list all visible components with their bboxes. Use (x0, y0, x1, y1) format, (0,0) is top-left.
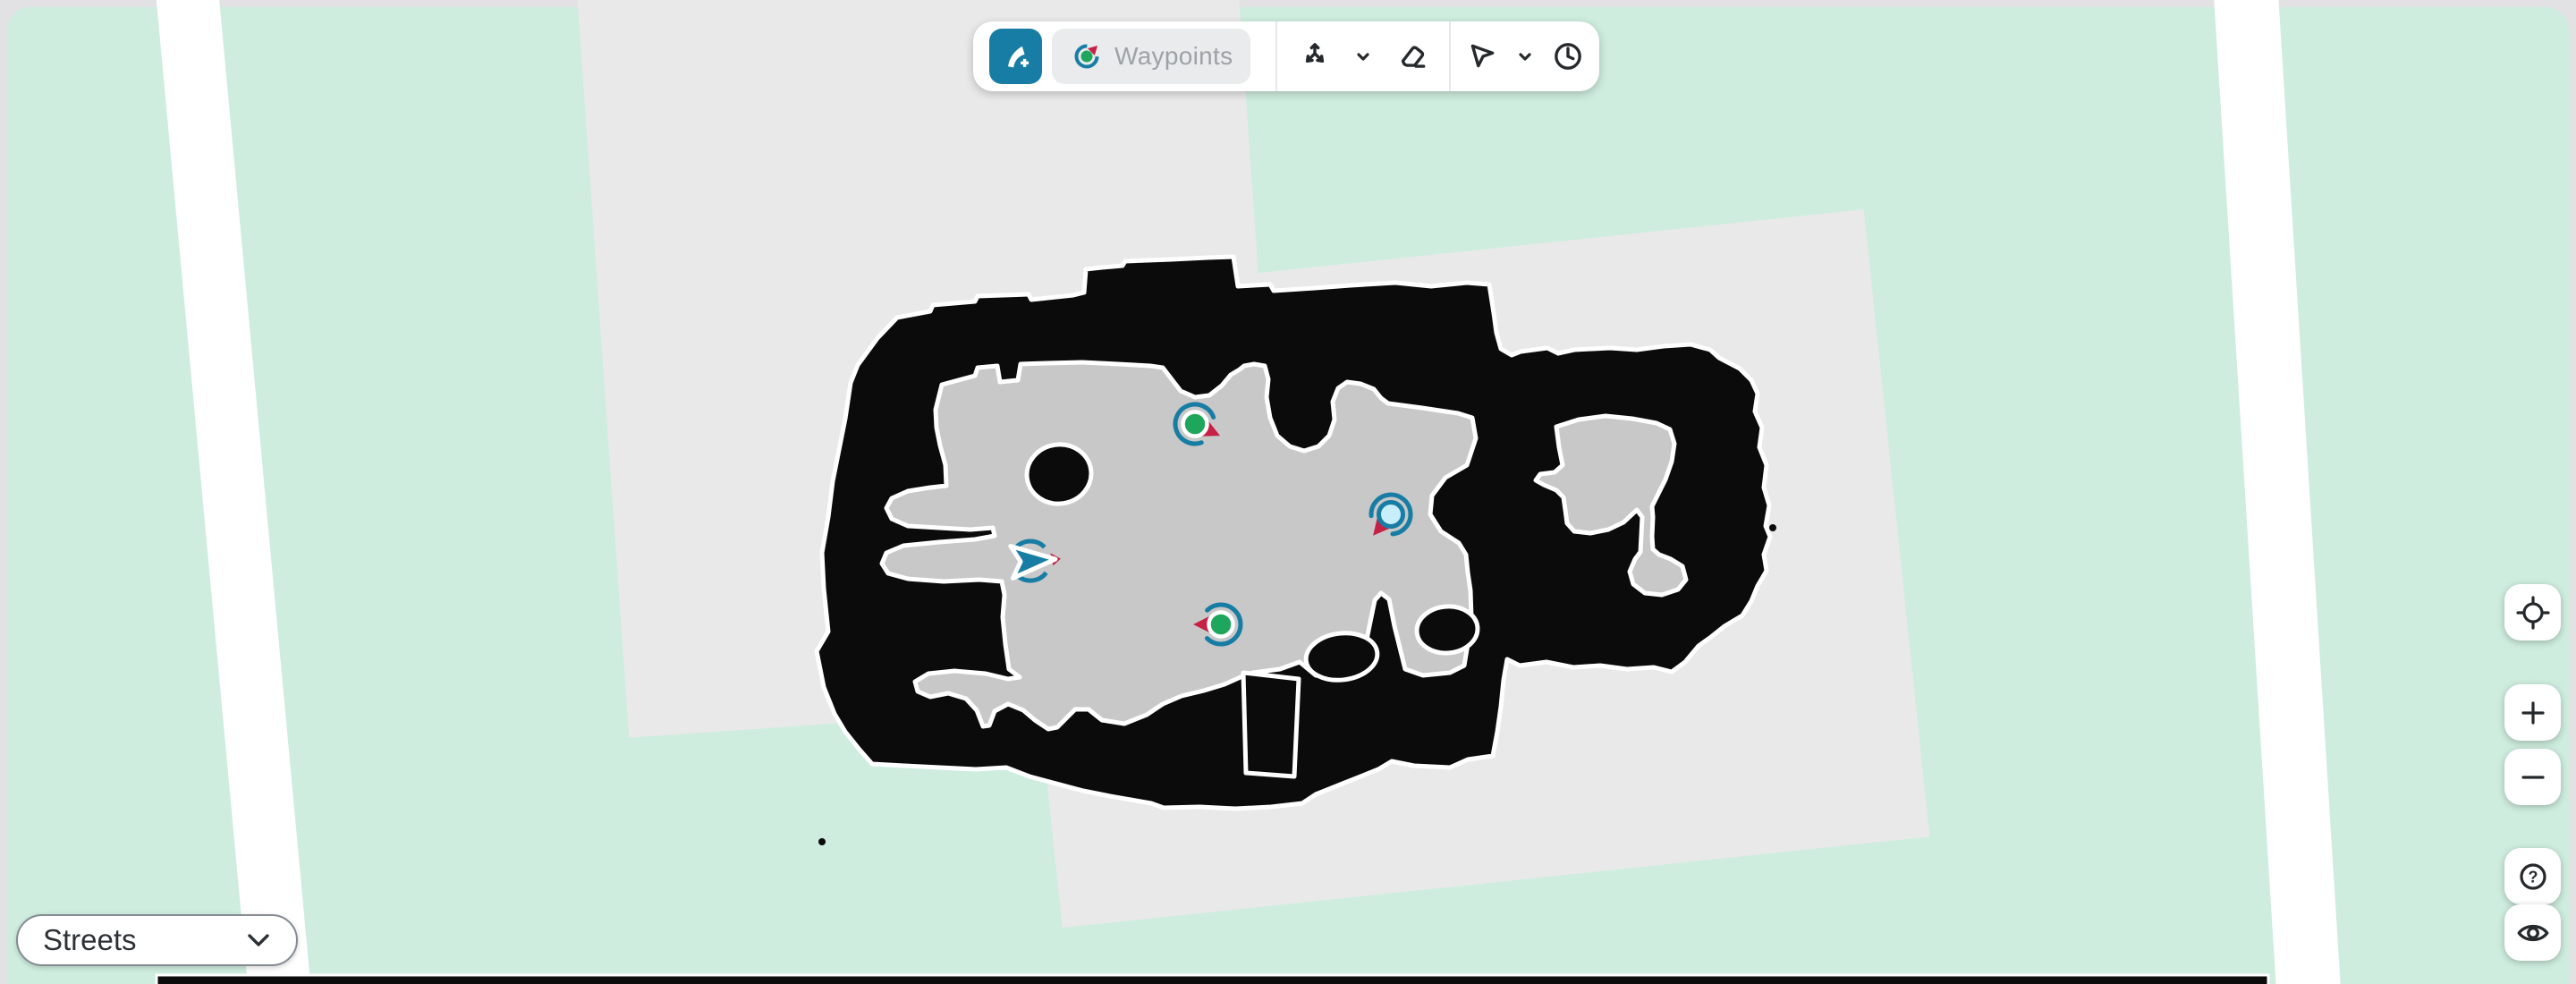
locate-icon (2515, 595, 2551, 631)
waypoints-toggle-label: Waypoints (1114, 42, 1233, 71)
route-menu-chevron[interactable] (1352, 29, 1375, 84)
zoom-out-button[interactable] (2504, 749, 2561, 805)
waypoint-2-marker[interactable] (1357, 480, 1425, 548)
toolbar-mode-group (1451, 21, 1599, 91)
waypoint-target-icon (1070, 39, 1104, 73)
chevron-down-icon (1359, 55, 1368, 59)
eye-icon (2514, 914, 2552, 952)
cursor-icon (1466, 40, 1498, 72)
basemap-selected-value: Streets (43, 923, 137, 957)
basemap-select[interactable]: Streets (16, 914, 298, 966)
plus-icon (2515, 695, 2551, 731)
chevron-down-icon (1521, 55, 1529, 59)
cursor-mode-button[interactable] (1462, 29, 1503, 84)
add-waypoint-button[interactable] (989, 29, 1042, 84)
map-toolbar: Waypoints (973, 21, 1599, 91)
help-button[interactable]: ? (2504, 848, 2561, 904)
add-waypoint-icon (1000, 40, 1032, 72)
history-button[interactable] (1547, 29, 1589, 84)
chevron-down-icon (246, 932, 271, 948)
waypoint-1-marker[interactable] (1161, 390, 1229, 458)
map-bottom-feature (157, 975, 2268, 984)
toolbar-edit-group (1277, 21, 1449, 91)
question-icon: ? (2515, 859, 2551, 895)
waypoints-toggle-button[interactable]: Waypoints (1052, 29, 1250, 84)
slam-obstacle (1243, 673, 1299, 776)
eraser-icon (1395, 39, 1429, 73)
cursor-mode-chevron[interactable] (1513, 29, 1537, 84)
eraser-button[interactable] (1392, 29, 1433, 84)
map-canvas[interactable]: Waypoints (0, 0, 2576, 984)
route-menu-button[interactable] (1294, 29, 1335, 84)
route-icon (1298, 39, 1332, 73)
slam-speck (1769, 524, 1776, 531)
zoom-in-button[interactable] (2504, 684, 2561, 741)
slam-occupancy-grid (0, 0, 2576, 984)
slam-speck (818, 838, 826, 845)
minus-icon (2515, 759, 2551, 795)
svg-text:?: ? (2528, 868, 2538, 886)
visibility-button[interactable] (2504, 904, 2561, 961)
toolbar-waypoint-group: Waypoints (973, 21, 1275, 91)
waypoint-3-marker[interactable] (1187, 590, 1255, 658)
clock-icon (1550, 38, 1586, 74)
robot-marker (996, 527, 1064, 595)
locate-button[interactable] (2504, 584, 2561, 640)
